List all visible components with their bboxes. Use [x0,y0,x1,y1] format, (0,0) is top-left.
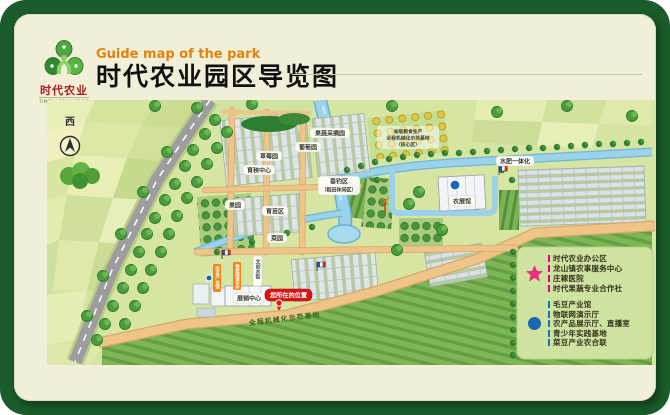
legend-tick [548,265,550,272]
hedge [278,113,310,125]
label-water-fertilizer: 水肥一体化 [500,158,530,166]
legend-item: 时代果蔬专业合作社 [548,283,622,293]
dot-marker-icon [524,316,545,331]
legend-tick [548,311,550,318]
fishing-pond [328,225,360,243]
brand-name: 时代农业 [33,85,95,96]
legend-tick [548,330,550,337]
page-title: 时代农业园区导览图 [96,63,339,91]
label-fishing-area: 垂钓区 [330,178,348,186]
app-frame: 时代农业 TIMES AGRICULTURE Guide map of the … [0,0,670,415]
map-card: 时代农业 TIMES AGRICULTURE Guide map of the … [14,14,656,401]
page-title-block: Guide map of the park 时代农业园区导览图 [96,48,339,91]
tag-cultural-street: 文创水街 [254,258,261,280]
tag-soybean-hall: 毛豆产业馆 [215,265,220,290]
brand-emblem-icon [42,40,86,80]
legend-item-label: 时代果蔬专业合作社 [553,283,622,294]
label-picking-garden: 果蔬采摘园 [314,130,345,138]
compass-label: 西 [65,116,75,128]
tag-iot-hall: 物联网演示厅 [235,263,240,292]
label-vegetable-garden: 菜园 [270,235,283,243]
legend-item: 菜豆产业农合联 [548,338,630,348]
subtitle-en: Guide map of the park [96,48,339,62]
legend-item: 时代农业办公区 [548,253,622,263]
header-divider [292,74,642,75]
legend-tick [548,275,550,282]
brand-logo: 时代农业 TIMES AGRICULTURE [33,40,95,104]
you-are-here-label: 您所在的位置 [270,292,307,300]
label-nursery-area: 育苗区 [266,208,284,216]
label-fishing-area-sub: （稻田休闲区） [321,187,356,194]
label-exhibition-center: 展销中心 [237,295,261,303]
legend-tick [548,255,550,262]
label-agri-exhibition-hall: 农展馆 [452,198,471,206]
legend-tick [548,285,550,292]
label-seedling-center: 育秧中心 [247,167,271,175]
legend-item: 庄稼医院 [548,273,622,283]
legend-group-star: 时代农业办公区龙山镇农事服务中心庄稼医院时代果蔬专业合作社 [524,253,650,293]
legend-tick [548,320,550,327]
legend-panel: 时代农业办公区龙山镇农事服务中心庄稼医院时代果蔬专业合作社 毛豆产业馆物联网演示… [522,250,652,358]
legend-tick [548,339,550,346]
label-orchard: 果园 [228,202,241,210]
legend-tick [548,301,550,308]
blue-dot-marker [206,275,212,281]
legend-item-label: 菜豆产业农合联 [553,337,607,348]
star-marker-icon [524,264,545,283]
label-strawberry-garden: 草莓园 [260,153,278,161]
label-base-note-3: （核心区） [396,141,420,148]
legend-group-dot: 毛豆产业馆物联网演示厅农产品展示厅、直播室青少年实践基地菜豆产业农合联 [524,300,650,348]
blue-dot-marker [450,180,460,190]
label-base-note-2: 全程机械化示范基地 [385,135,429,142]
label-grape-garden: 葡萄园 [298,144,317,152]
legend-item: 龙山镇农事服务中心 [548,263,622,273]
label-base-note-1: 省级粮食生产 [393,128,423,135]
